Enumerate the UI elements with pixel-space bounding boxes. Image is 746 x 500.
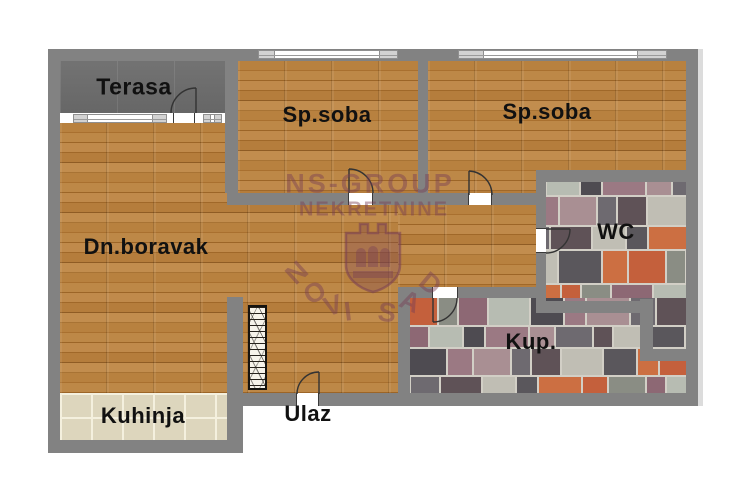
bedroom2-window: [458, 50, 667, 59]
watermark-agency-name: NS-GROUP: [285, 169, 455, 200]
window-frame-cap: [637, 51, 666, 58]
window-frame-cap: [214, 115, 221, 122]
wall-wc-bottom: [536, 301, 640, 313]
wall-living-hall-lower: [227, 297, 243, 453]
window-frame-cap: [152, 115, 166, 122]
wall-right-shadow: [698, 49, 703, 406]
watermark-agency-sub: NEKRETNINE: [299, 199, 449, 222]
room-label-ulaz: Ulaz: [284, 401, 331, 427]
wall-kitchen-bottom: [48, 440, 243, 453]
terrace-window-left: [73, 114, 167, 123]
room-label-wc: WC: [597, 219, 635, 245]
wall-left: [48, 49, 60, 453]
window-frame-cap: [459, 51, 484, 58]
wall-wc-stub: [640, 299, 653, 352]
room-label-sp-soba-2: Sp.soba: [502, 99, 591, 125]
room-label-kup: Kup.: [506, 329, 557, 355]
window-frame-cap: [74, 115, 88, 122]
terrace-window-right: [203, 114, 222, 123]
wall-living-bedroom1: [225, 61, 238, 193]
room-label-sp-soba-1: Sp.soba: [282, 102, 371, 128]
floor-plan: NS-GROUP NEKRETNINE N O V I S A D Terasa…: [0, 0, 746, 500]
bedroom1-window: [258, 50, 398, 59]
bedroom2-door-opening: [468, 193, 492, 205]
wall-alcove-bottom: [640, 349, 686, 361]
wall-right: [686, 49, 698, 406]
window-frame-cap: [204, 115, 211, 122]
room-label-dn-boravak: Dn.boravak: [84, 234, 209, 260]
terrace-door-opening: [173, 113, 195, 123]
window-frame-cap: [259, 51, 275, 58]
window-frame-cap: [379, 51, 397, 58]
wardrobe-closet: [248, 305, 267, 390]
wc-door-opening: [536, 228, 546, 253]
wall-wc-top: [536, 170, 686, 182]
room-label-terasa: Terasa: [96, 74, 171, 101]
room-label-kuhinja: Kuhinja: [101, 403, 185, 429]
